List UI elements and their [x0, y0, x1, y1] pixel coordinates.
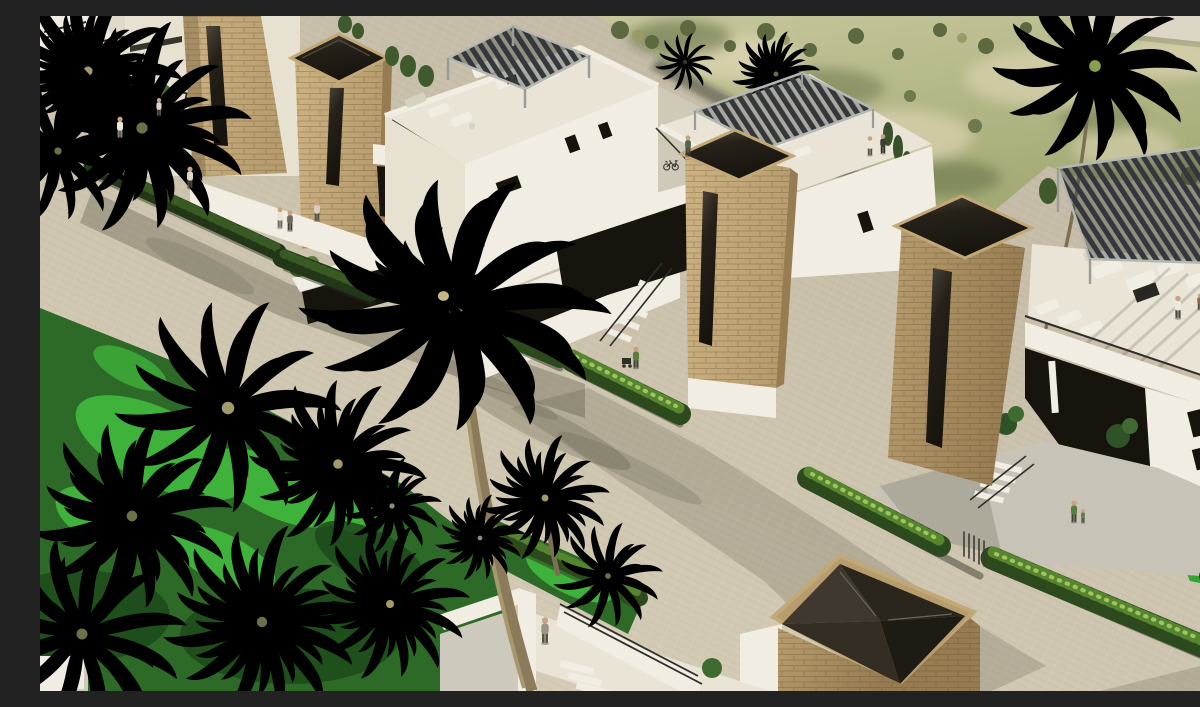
- architectural-render: [40, 16, 1200, 691]
- shrub: [702, 658, 722, 678]
- terrace-planter: [1039, 178, 1057, 204]
- stone-tower-3: [681, 130, 798, 418]
